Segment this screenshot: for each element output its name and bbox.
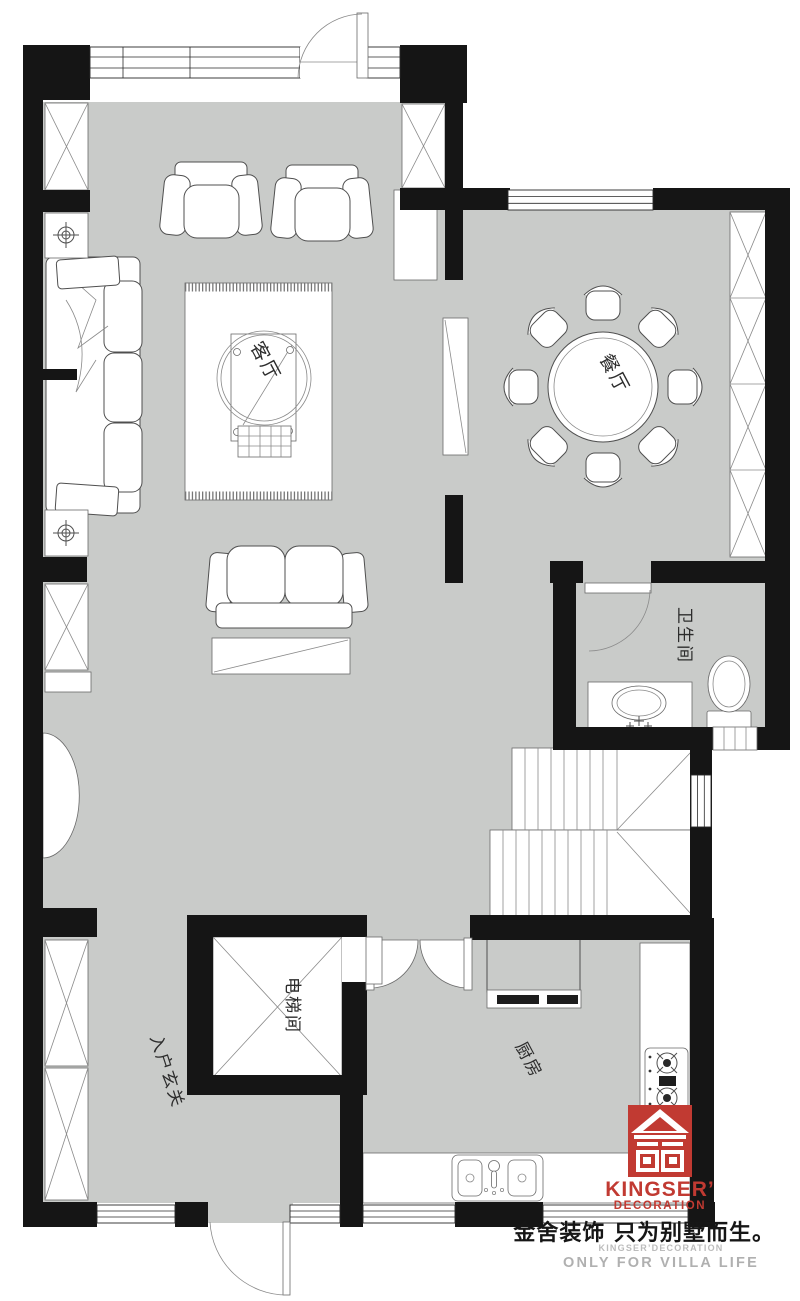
elevator-shaft <box>213 937 342 1077</box>
entry-door <box>210 1222 290 1295</box>
sofa-main <box>46 256 142 516</box>
stair-top-steps <box>713 727 757 750</box>
balcony-door <box>298 13 368 78</box>
brand-sub: DECORATION <box>614 1200 706 1212</box>
left-cabinet-lower-1 <box>45 940 88 1066</box>
kitchen-stove <box>645 1048 688 1113</box>
window-top-left <box>90 47 300 78</box>
brand-slogans: 金舍装饰 只为别墅而生。 KINGSER’DECORATION ONLY FOR… <box>512 1220 775 1271</box>
staircase <box>490 748 693 917</box>
dining-tall-cabinet <box>730 212 766 557</box>
floor-plan-page: 客厅 餐厅 卫生间 电梯间 入户玄关 厨房 KINGSER’ DECORATIO… <box>0 0 800 1301</box>
refrigerator-counter <box>487 938 581 1008</box>
elevator-door <box>342 937 382 984</box>
slogan-english-small: KINGSER’DECORATION <box>599 1243 724 1253</box>
top-cabinet-near-balcony <box>402 104 445 188</box>
side-table-bottom <box>45 510 88 556</box>
side-table-top <box>45 213 88 258</box>
toilet <box>707 656 751 729</box>
window-top-small <box>367 47 400 78</box>
coffee-table-tray <box>238 426 291 457</box>
slogan-english: ONLY FOR VILLA LIFE <box>563 1255 759 1271</box>
armchair-2 <box>270 165 374 241</box>
floor-plan-svg: 客厅 餐厅 卫生间 电梯间 入户玄关 厨房 KINGSER’ DECORATIO… <box>0 0 800 1301</box>
sideboard <box>443 318 468 455</box>
window-stairs <box>691 775 711 827</box>
label-elevator-room: 电梯间 <box>282 977 302 1034</box>
dining-table <box>548 332 658 442</box>
left-cabinet-lower-2 <box>45 1068 88 1200</box>
left-cabinet-middle <box>45 584 91 692</box>
brand-name: KINGSER’ <box>605 1178 715 1201</box>
bathroom-vanity <box>588 682 692 730</box>
window-bottom-mid-2 <box>363 1205 455 1223</box>
armchair-1 <box>159 162 263 238</box>
window-bottom-mid-1 <box>290 1205 340 1223</box>
kitchen-sink <box>452 1155 543 1201</box>
left-cabinet-top <box>45 103 88 190</box>
console-table-bottom <box>212 638 350 674</box>
window-dining <box>508 190 653 210</box>
window-bottom-left <box>97 1205 175 1223</box>
label-bathroom: 卫生间 <box>674 607 694 664</box>
sofa-secondary <box>205 546 368 628</box>
